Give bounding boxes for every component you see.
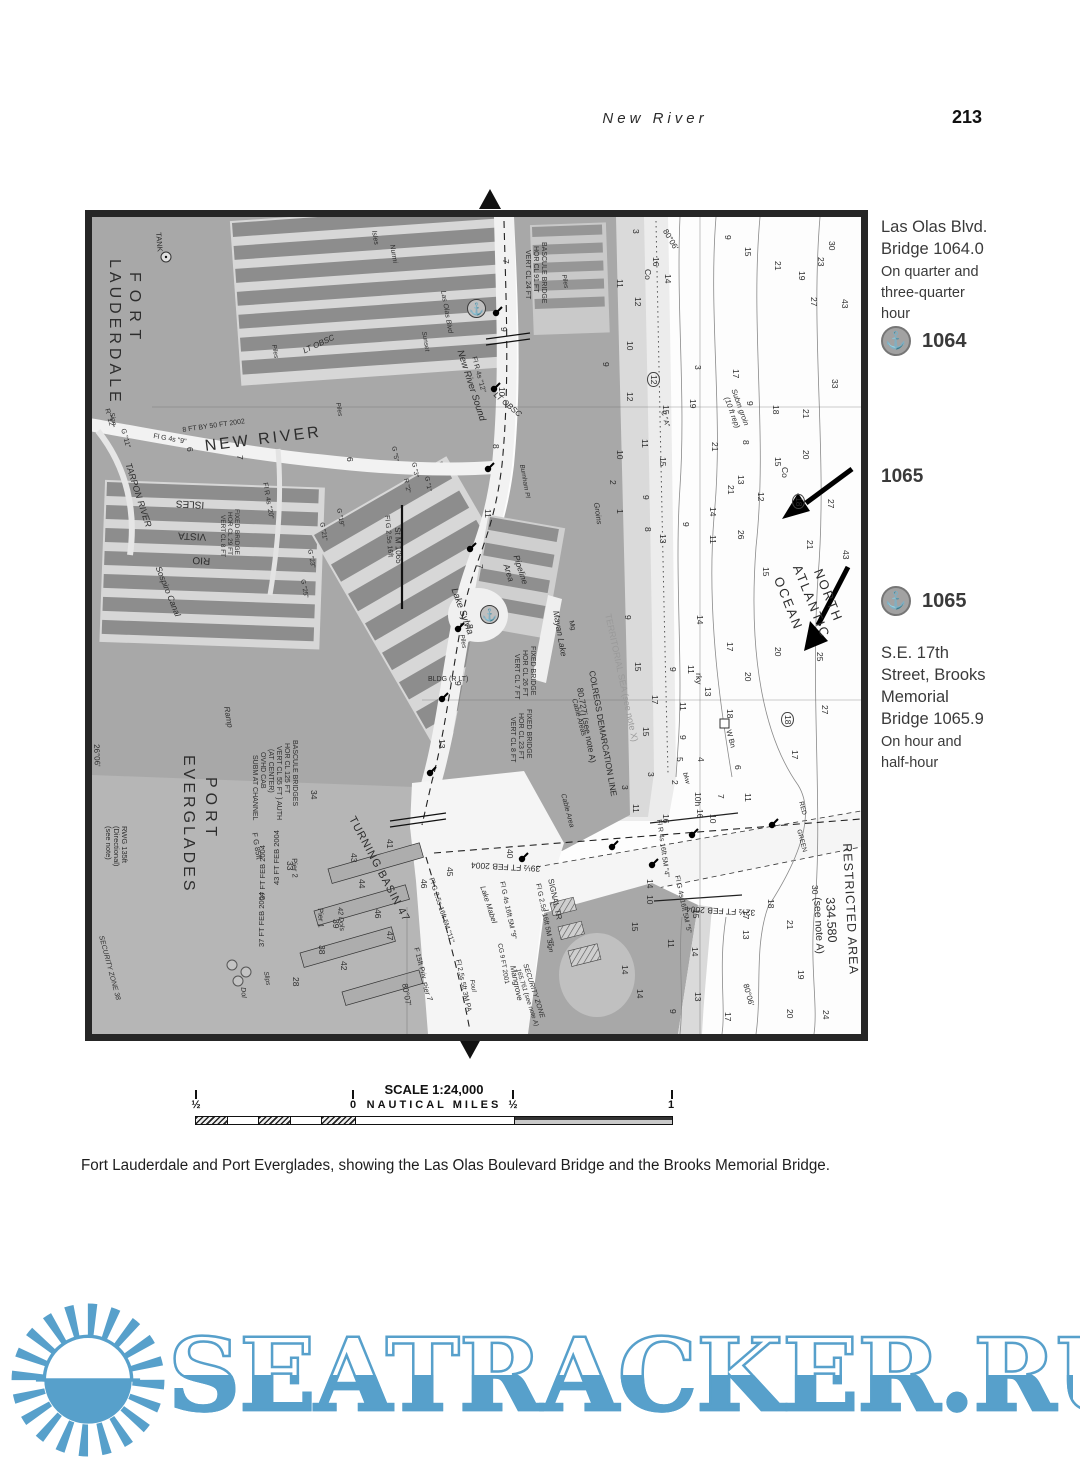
depth-number: 21	[711, 442, 720, 451]
chart-label: Slips	[262, 971, 271, 986]
chart-label: Mg	[567, 620, 576, 631]
book-page: New River 213	[0, 0, 1080, 1466]
chart-label: G "11"	[119, 428, 131, 449]
depth-number: 15	[692, 909, 701, 918]
depth-number: 8	[466, 624, 475, 629]
scale-tick-label: ½	[508, 1099, 517, 1111]
chart-label: Foul	[468, 979, 477, 993]
waterway-route-arrow-bottom	[459, 1039, 481, 1059]
depth-number: 13	[659, 534, 668, 543]
depth-number: 9	[669, 667, 678, 672]
depth-number: 19	[798, 271, 807, 280]
depth-number: 13	[694, 992, 703, 1001]
chart-label: RWG 135ft	[121, 826, 129, 863]
running-head: New River	[575, 110, 735, 127]
chart-label: (AT CENTER)	[267, 749, 274, 793]
chart-label: Las Olas Blvd	[439, 290, 453, 334]
chart-label: VERT CL 8 FT	[509, 717, 516, 762]
depth-number: 14	[636, 989, 645, 998]
chart-label: Pier 7	[420, 981, 434, 1002]
depth-number: 16	[662, 814, 671, 823]
depth-number: 24	[822, 1010, 831, 1019]
bridge2-schedule-line2: half-hour	[881, 753, 938, 774]
depth-number: 10	[498, 387, 507, 396]
chart-label: Piles	[334, 402, 343, 417]
chart-label: Sunset	[420, 331, 430, 352]
chart-label: VERT CL 8 FT	[219, 515, 226, 557]
depth-number: 3	[694, 365, 703, 370]
chart-label: CG 9 FT 2001	[496, 943, 510, 985]
chart-label: FIXED BRIDGE	[233, 509, 240, 555]
watermark-text: SEATRACKER.RU	[168, 1300, 1073, 1450]
chart-label: 26°06'	[92, 744, 101, 767]
depth-number: 33	[286, 861, 295, 870]
chart-label: VERT CL 24 FT	[524, 250, 531, 299]
chart-label: HOR CL 23 FT	[517, 713, 524, 759]
depth-number: 46	[420, 879, 429, 888]
depth-number: 9	[500, 327, 509, 332]
depth-number: 15	[662, 405, 671, 414]
depth-number: 45	[446, 867, 455, 876]
depth-number: 10	[709, 814, 718, 823]
depth-number: 47	[386, 931, 395, 940]
chart-label: G "19"	[335, 508, 345, 528]
chart-label: EVERGLADES	[180, 755, 196, 893]
depth-number: 2	[609, 480, 618, 485]
chart-label: VERT CL 55 FT } AUTH	[275, 746, 282, 820]
chart-label: F 15ft Priv	[412, 947, 427, 980]
depth-number: 8	[742, 440, 751, 445]
chart-label: 8 FT BY 50 FT 2002	[182, 418, 245, 434]
depth-number: 39	[332, 919, 341, 928]
depth-number: 7	[502, 259, 511, 264]
chart-label: Lake Mabel	[479, 885, 498, 924]
sun-logo-icon	[4, 1296, 172, 1464]
chart-number: 1065	[881, 466, 923, 488]
chart-label: TANK	[155, 232, 164, 252]
depth-number: 27	[821, 705, 830, 714]
chart-label: 80°06'	[661, 228, 679, 252]
depth-number: 9	[454, 681, 463, 686]
depth-number: 15	[631, 922, 640, 931]
depth-number: 15	[642, 727, 651, 736]
chart-label: Fl R 4s "20"	[261, 482, 274, 520]
depth-number: 38	[318, 945, 327, 954]
chart-label: Mayan Lake	[552, 610, 568, 657]
depth-number: 18	[793, 494, 806, 509]
chart-label: Fl G 4s 16ft 5M "9"	[498, 881, 517, 940]
depth-number: 11	[744, 793, 753, 802]
chart-label: 80°06'	[741, 983, 755, 1007]
depth-number: 13	[737, 475, 746, 484]
depth-number: 9	[669, 1009, 678, 1014]
depth-number: 16	[652, 257, 661, 266]
chart-label: LT OBSC	[302, 334, 336, 355]
depth-number: 9	[724, 235, 733, 240]
chart-label: TARPON RIVER	[123, 462, 152, 528]
chart-label: G "3"	[410, 462, 419, 478]
depth-number: 14	[646, 879, 655, 888]
depth-number: 11	[709, 535, 718, 544]
chart-label: 37 FT FEB 2004	[258, 892, 266, 947]
depth-number: 17	[724, 1012, 733, 1021]
anchorage-1064: ⚓ 1064	[881, 326, 967, 356]
chart-label: FIXED BRIDGE	[525, 709, 532, 758]
anchorage-1064-label: 1064	[922, 330, 967, 353]
depth-number: 19	[689, 399, 698, 408]
depth-number: 15	[762, 567, 771, 576]
depth-number: 27	[827, 499, 836, 508]
depth-number: 18	[782, 712, 795, 727]
depth-number: 13	[742, 930, 751, 939]
depth-number: 6	[734, 765, 743, 770]
anchorage-1065-label: 1065	[922, 590, 967, 613]
chart-label: 43 FT FEB 2004	[273, 830, 281, 885]
depth-number: 10	[616, 450, 625, 459]
depth-number: 4	[697, 757, 706, 762]
depth-number: 3	[621, 785, 630, 790]
chart-label: Fl G 4s "9"	[153, 433, 187, 446]
depth-number: 21	[786, 920, 795, 929]
waterway-route-arrow-top	[479, 189, 501, 209]
depth-number: 27	[810, 297, 819, 306]
depth-number: 11	[484, 509, 493, 518]
depth-number: 10h	[694, 792, 703, 806]
chart-label: Isles	[370, 230, 379, 245]
depth-number: 11	[616, 279, 625, 288]
chart-labels-layer: FORTLAUDERDALENEW RIVERTARPON RIVERSospi…	[92, 217, 861, 1034]
depth-number: 14	[691, 947, 700, 956]
depth-number: 43	[841, 299, 850, 308]
depth-number: 15	[634, 662, 643, 671]
bridge1-schedule-line2: three-quarter	[881, 283, 965, 304]
chart-label: W Bn	[725, 729, 737, 749]
chart-label: RESTRICTED AREA	[841, 843, 860, 975]
depth-number: 17	[742, 910, 751, 919]
depth-number: 30	[811, 885, 820, 894]
chart-label: Fl R 4s 16ft 5M "4"	[655, 819, 670, 878]
chart-label: ISLES	[176, 498, 205, 509]
depth-number: 33	[831, 379, 840, 388]
depth-number: 12	[648, 372, 661, 387]
chart-label: SIGNAL TR	[546, 878, 563, 921]
depth-number: 17	[732, 369, 741, 378]
anchorage-1065: ⚓ 1065	[881, 586, 967, 616]
chart-label: Piles	[270, 344, 279, 359]
bridge2-title-line1: S.E. 17th	[881, 642, 949, 664]
chart-label: TERRITORIAL SEA (see note X)	[603, 613, 639, 743]
depth-number: 14	[664, 274, 673, 283]
scale-bar-graphic	[195, 1116, 673, 1125]
depth-number: 21	[774, 261, 783, 270]
chart-label: Sign	[108, 412, 117, 426]
depth-number: 46	[374, 909, 383, 918]
depth-number: 5	[676, 757, 685, 762]
bridge2-schedule-line1: On hour and	[881, 732, 962, 753]
chart-label: G "25"	[299, 579, 309, 599]
chart-label: VERT CL 7 FT	[513, 654, 520, 699]
chart-label: G "21"	[318, 522, 328, 542]
depth-number: 30	[828, 241, 837, 250]
depth-number: 13	[704, 687, 713, 696]
bridge2-title-line2: Street, Brooks	[881, 664, 986, 686]
chart-label: G "23"	[306, 549, 316, 569]
chart-label: (see note A)	[812, 897, 825, 954]
chart-label: Fl G 2.5s 16ft 5M "11"	[427, 877, 455, 944]
depth-number: Co	[781, 467, 790, 478]
figure-caption: Fort Lauderdale and Port Everglades, sho…	[81, 1157, 1012, 1175]
depth-number: 20	[774, 647, 783, 656]
chart-label: BASCULE BRIDGE	[540, 242, 547, 303]
chart-label: Burnham Pl	[518, 464, 530, 499]
depth-number: 12	[757, 492, 766, 501]
chart-label: Groins	[593, 502, 604, 525]
chart-label: SUBM AT CHANNEL	[251, 755, 258, 820]
depth-number: 25	[816, 652, 825, 661]
depth-number: 16	[696, 809, 705, 818]
chart-label: Piles	[458, 634, 467, 649]
chart-label: 80°07'	[400, 983, 412, 1007]
depth-number: rky	[695, 673, 704, 684]
depth-number: 21	[802, 409, 811, 418]
depth-number: 9	[682, 522, 691, 527]
scale-tick-label: 0	[350, 1099, 356, 1111]
chart-label: VISTA	[178, 530, 207, 541]
depth-number: 3	[632, 229, 641, 234]
scale-tick-label: ½	[191, 1099, 200, 1111]
chart-label: TURNING BASIN 47	[346, 815, 411, 924]
chart-label: HOR CL 125 FT	[283, 743, 290, 793]
bridge1-title-line1: Las Olas Blvd.	[881, 216, 987, 238]
depth-number: 14	[621, 965, 630, 974]
depth-number: 43	[350, 853, 359, 862]
depth-number: 20	[786, 1009, 795, 1018]
chart-label: Sospiro Canal	[154, 565, 182, 618]
watermark: SEATRACKER.RU	[0, 1290, 1080, 1466]
depth-number: 19	[797, 970, 806, 979]
page-number: 213	[952, 107, 982, 128]
chart-label: GREEN	[795, 829, 807, 853]
depth-number: 6	[186, 447, 195, 452]
anchor-icon: ⚓	[881, 586, 911, 616]
depth-number: 18	[726, 709, 735, 718]
depth-number: 17	[651, 695, 660, 704]
depth-number: 7	[236, 455, 245, 460]
chart-label: Sign	[545, 939, 554, 953]
depth-number: 6	[346, 457, 355, 462]
chart-label: HOR CL 26 FT	[521, 650, 528, 696]
depth-number: 9	[642, 495, 651, 500]
depth-number: 14	[709, 507, 718, 516]
chart-label: Piles	[560, 274, 569, 289]
chart-label: BASCULE BRIDGES	[291, 740, 298, 806]
chart-label: St M 1065	[393, 527, 402, 564]
chart-label: Pier 1	[317, 908, 325, 928]
bridge1-schedule-line1: On quarter and	[881, 262, 979, 283]
depth-number: 2	[671, 780, 680, 785]
depth-number: 20	[744, 672, 753, 681]
nautical-chart: FORTLAUDERDALENEW RIVERTARPON RIVERSospi…	[85, 210, 868, 1041]
depth-number: 34	[310, 790, 319, 799]
depth-number: 12	[634, 297, 643, 306]
depth-number: 9	[624, 615, 633, 620]
depth-number: 14	[696, 615, 705, 624]
chart-label: Pipeline	[512, 554, 529, 585]
depth-number: 15	[744, 247, 753, 256]
depth-number: 10	[646, 895, 655, 904]
chart-label: 39½ FT FEB 2004	[471, 861, 541, 873]
depth-number: 44	[358, 879, 367, 888]
depth-number: 18	[767, 899, 776, 908]
depth-number: 9	[679, 735, 688, 740]
depth-number: 28	[292, 977, 301, 986]
bridge2-title-line3: Memorial	[881, 686, 949, 708]
anchor-icon: ⚓	[881, 326, 911, 356]
chart-label: ⚓	[467, 299, 486, 318]
depth-number: 11	[667, 939, 676, 948]
depth-number: 10	[626, 341, 635, 350]
depth-number: Co	[644, 269, 653, 280]
depth-number: 41	[386, 839, 395, 848]
chart-label: HOR CL 91 FT	[532, 246, 539, 292]
depth-number: 15	[659, 457, 668, 466]
depth-number: 23	[817, 257, 826, 266]
depth-number: 11	[632, 804, 641, 813]
bridge1-schedule-line3: hour	[881, 304, 910, 325]
chart-label: RIO	[192, 554, 210, 565]
chart-label: OVHD CAB	[259, 752, 266, 789]
depth-number: 15	[774, 457, 783, 466]
depth-number: 18	[772, 405, 781, 414]
chart-label: (Directional)	[113, 826, 121, 866]
scale-title: SCALE 1:24,000	[195, 1082, 673, 1097]
chart-label: LAUDERDALE	[106, 259, 122, 406]
depth-number: 21	[727, 485, 736, 494]
chart-label: bkw	[681, 772, 690, 785]
chart-label: Cable Area	[559, 793, 575, 828]
scale-units: NAUTICAL MILES	[195, 1099, 673, 1111]
chart-label: Ramp	[222, 706, 234, 728]
chart-label: R "2"	[402, 478, 411, 494]
chart-label: RED	[797, 801, 807, 816]
depth-number: 13	[438, 739, 447, 748]
depth-number: 8	[644, 527, 653, 532]
depth-number: 1	[616, 509, 625, 514]
depth-number: 9	[746, 401, 755, 406]
scale-bar: SCALE 1:24,000 NAUTICAL MILES ½ 0 ½ 1	[195, 1082, 673, 1125]
depth-number: 7	[476, 564, 485, 569]
chart-label: Nurmi	[388, 244, 398, 264]
depth-number: 9	[602, 362, 611, 367]
chart-label: G "5"	[390, 446, 399, 462]
chart-label: G "1"	[423, 476, 432, 492]
depth-number: 26	[737, 530, 746, 539]
depth-number: 11	[679, 702, 688, 711]
depth-number: 40	[506, 849, 515, 858]
chart-label: SECURITY ZONE 38	[97, 935, 121, 1001]
depth-number: 7	[717, 794, 726, 799]
depth-number: 11	[641, 439, 650, 448]
chart-label: ⚓	[480, 605, 499, 624]
depth-number: 17	[791, 750, 800, 759]
depth-number: 20	[802, 450, 811, 459]
chart-label: Dol	[239, 987, 247, 998]
depth-number: 21	[806, 540, 815, 549]
depth-number: 12	[626, 392, 635, 401]
chart-label: HOR CL 29 FT	[226, 512, 233, 555]
scale-tick-label: 1	[668, 1099, 674, 1111]
chart-label: NEW RIVER	[204, 425, 323, 455]
depth-number: 43	[842, 550, 851, 559]
depth-number: 42	[340, 961, 349, 970]
chart-label: PORT	[202, 777, 218, 841]
chart-label: FIXED BRIDGE	[529, 646, 536, 695]
bridge2-title-line4: Bridge 1065.9	[881, 708, 984, 730]
chart-label: FORT	[126, 272, 142, 347]
depth-number: 3	[647, 772, 656, 777]
bridge1-title-line2: Bridge 1064.0	[881, 238, 984, 260]
chart-label: Fl G 2.5s 16ft	[383, 515, 394, 557]
depth-number: 17	[726, 642, 735, 651]
chart-label: (see note)	[105, 826, 113, 860]
chart-label: 334.580	[824, 897, 839, 943]
depth-number: 8	[492, 444, 501, 449]
